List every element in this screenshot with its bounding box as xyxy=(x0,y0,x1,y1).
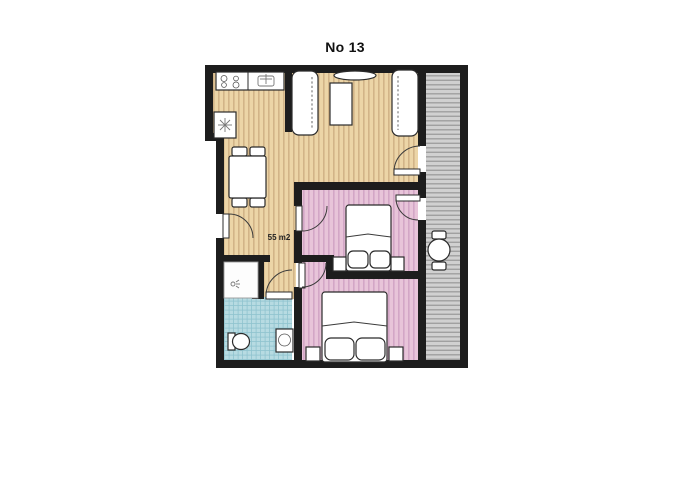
tv-icon xyxy=(334,71,376,80)
dining-table xyxy=(229,156,266,198)
bathroom-door-leaf xyxy=(266,292,292,299)
dining-chair xyxy=(250,147,265,156)
wall-kitchen-stub xyxy=(285,73,292,132)
nightstand xyxy=(333,257,346,271)
wall-right xyxy=(460,65,468,368)
bed-1-pillow xyxy=(370,251,390,268)
balcony-chair xyxy=(432,231,446,239)
washing-machine-icon xyxy=(218,118,232,132)
dining-chair xyxy=(250,198,265,207)
wall-balcony-c xyxy=(418,220,426,360)
bed-1-pillow xyxy=(348,251,368,268)
coffee-table xyxy=(330,83,352,125)
toilet-icon xyxy=(228,333,250,350)
nightstand xyxy=(391,257,404,271)
floor-balcony xyxy=(426,73,460,360)
entrance-door-leaf xyxy=(223,214,229,238)
sofa-left xyxy=(292,71,318,135)
sofa-right xyxy=(392,70,418,136)
wall-shower-right xyxy=(258,262,264,294)
wall-bedrooms-left-c xyxy=(294,287,302,360)
dining-chair xyxy=(232,147,247,156)
living-balcony-door-leaf xyxy=(394,169,420,175)
floor-plan-drawing: 55 m2 xyxy=(0,0,700,500)
washbasin-icon xyxy=(276,329,293,352)
nightstand xyxy=(389,347,403,361)
bed-2-pillow xyxy=(325,338,354,360)
nightstand xyxy=(306,347,320,361)
shower-tray xyxy=(224,262,258,298)
bedroom1-door-leaf xyxy=(296,206,302,231)
bed-2-pillow xyxy=(356,338,385,360)
wall-shower-top xyxy=(216,255,270,262)
balcony-round-table xyxy=(428,239,450,261)
dining-chair xyxy=(232,198,247,207)
bedroom1-balcony-door-leaf xyxy=(396,195,420,201)
bedroom2-door-leaf xyxy=(299,263,305,288)
floor-plan-canvas: No 13 xyxy=(0,0,700,500)
wall-left-lower-a xyxy=(216,133,224,214)
wall-left-upper xyxy=(205,65,213,141)
dining-set xyxy=(229,147,266,207)
area-label: 55 m2 xyxy=(268,233,291,242)
wall-balcony-b xyxy=(418,172,426,198)
wall-balcony-a xyxy=(418,73,426,146)
wall-bedrooms-left-a xyxy=(294,182,302,206)
wall-bedroom1-bedroom2 xyxy=(326,271,426,279)
wall-living-bedroom1 xyxy=(294,182,426,190)
balcony-chair xyxy=(432,262,446,270)
